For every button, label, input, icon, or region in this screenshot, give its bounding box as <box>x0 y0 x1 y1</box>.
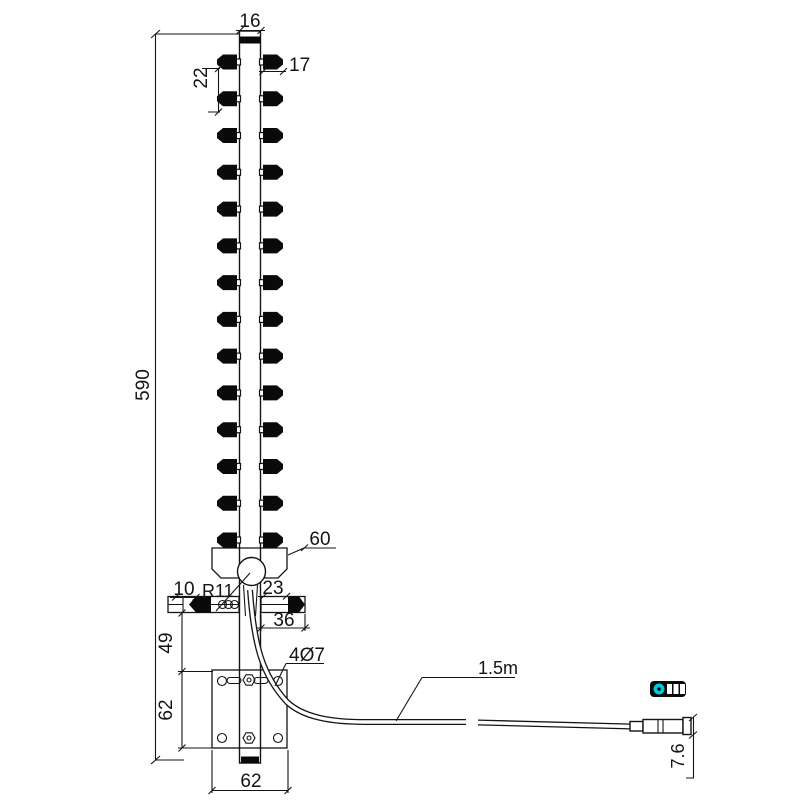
director-left <box>217 422 237 437</box>
dim-label: 4Ø7 <box>289 645 325 666</box>
dim-feed-block-width: 60 <box>288 529 336 555</box>
dim-bracket-upper-height: 49 <box>156 610 213 676</box>
director-left <box>217 496 237 511</box>
director-left <box>217 349 237 364</box>
director-left <box>217 533 237 548</box>
drawing-linework: 590 16 17 22 60 10 R11 23 36 49 <box>0 0 800 800</box>
antenna-dimensional-drawing: 590 16 17 22 60 10 R11 23 36 49 <box>0 0 800 800</box>
director-left <box>217 312 237 327</box>
director-right <box>263 165 283 180</box>
director-left <box>217 202 237 217</box>
dim-reflector-right-offset: 23 <box>258 578 290 600</box>
director-right <box>263 385 283 400</box>
director-left <box>217 91 237 106</box>
dim-label: 60 <box>309 529 330 550</box>
dim-plate-side-height: 62 <box>156 672 213 752</box>
director-left <box>217 459 237 474</box>
dim-reflector-left-offset: 10 <box>170 579 200 601</box>
director-right <box>263 312 283 327</box>
mounting-hole <box>218 734 227 743</box>
director-right <box>263 202 283 217</box>
director-right <box>263 128 283 143</box>
dim-label: 7.6 <box>668 743 688 768</box>
dim-label: 1.5m <box>478 658 518 678</box>
director-right <box>263 238 283 253</box>
boom-top-band <box>240 37 261 44</box>
director-left <box>217 275 237 290</box>
dim-label: 62 <box>240 771 261 792</box>
dim-label: 16 <box>239 11 260 32</box>
director-left <box>217 238 237 253</box>
director-right <box>263 533 283 548</box>
dim-cable-length: 1.5m <box>396 658 518 721</box>
director-right <box>263 55 283 70</box>
dim-label: 22 <box>191 67 212 88</box>
dim-label: 17 <box>289 55 310 76</box>
dim-reflector-right-length: 36 <box>256 610 310 632</box>
director-right <box>263 422 283 437</box>
mounting-hole <box>274 734 283 743</box>
director-right <box>263 496 283 511</box>
director-right <box>263 349 283 364</box>
dim-label: 590 <box>133 369 154 401</box>
dim-label: 36 <box>273 610 294 631</box>
dim-label: 62 <box>156 699 177 720</box>
dim-label: 10 <box>173 579 194 600</box>
sma-connector-side <box>630 718 691 735</box>
director-left <box>217 385 237 400</box>
dim-label: 23 <box>262 578 283 599</box>
dim-element-spacing: 22 <box>191 65 222 116</box>
director-left <box>217 165 237 180</box>
balun-circle <box>238 558 266 586</box>
director-right <box>263 91 283 106</box>
connector-face-icon <box>650 681 686 697</box>
dim-boom-top-width: 16 <box>236 11 265 34</box>
mounting-hole <box>218 677 227 686</box>
director-right <box>263 275 283 290</box>
dim-label: 49 <box>156 632 177 653</box>
boom-bottom-cap <box>241 757 259 764</box>
director-left <box>217 128 237 143</box>
director-right <box>263 459 283 474</box>
dim-balun-radius: R11 <box>202 581 234 601</box>
